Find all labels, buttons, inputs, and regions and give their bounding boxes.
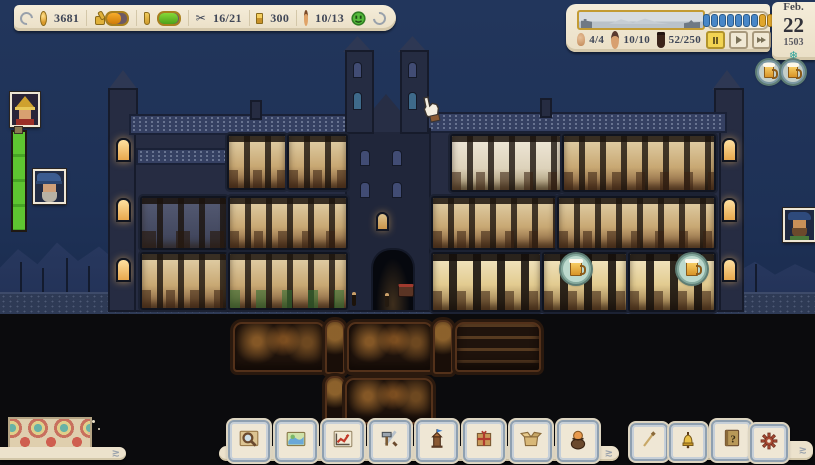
worker-icon: [611, 31, 619, 49]
left-wing-lower-roof: [136, 148, 230, 165]
time-beads: [702, 14, 774, 27]
play-button[interactable]: [729, 31, 748, 49]
blue-bead[interactable]: [743, 14, 750, 27]
supplies-bar: [157, 11, 181, 26]
room[interactable]: [287, 134, 348, 190]
sparkle: [98, 428, 100, 430]
brewery-room[interactable]: [347, 322, 433, 372]
date-day: 22: [783, 15, 804, 36]
blue-bead[interactable]: [735, 14, 742, 27]
blue-bead[interactable]: [751, 14, 758, 27]
magnifier-icon: [238, 428, 260, 455]
portrait-helmet-soldier[interactable]: [10, 92, 40, 127]
inspect-button[interactable]: [228, 420, 270, 462]
monks-button[interactable]: [557, 420, 599, 462]
beer-badge[interactable]: [677, 254, 707, 284]
chimney: [250, 100, 262, 120]
illuminated-ornament: [8, 417, 92, 451]
beer-mug-icon: [570, 262, 582, 276]
resource-bar: 3681 ✂ 16/21 300 10/13: [14, 5, 396, 31]
storage-room[interactable]: [455, 322, 541, 372]
monk-count: 10/13: [315, 11, 344, 26]
left-tower-roof: [108, 70, 138, 90]
help-book-icon: ?: [721, 427, 743, 454]
fast-forward-button[interactable]: [752, 31, 771, 49]
settings-button[interactable]: [750, 424, 788, 462]
trade-goods-button[interactable]: [463, 420, 505, 462]
open-box-icon: [520, 428, 542, 455]
food-bar: [105, 11, 129, 26]
beer-badge[interactable]: [561, 254, 591, 284]
beer-mug-icon: [764, 66, 774, 78]
tree: [88, 266, 90, 294]
basement-stairwell[interactable]: [325, 376, 345, 426]
tree: [20, 262, 22, 294]
supplies-pouch-icon: [144, 12, 150, 25]
beer-mug-icon: [788, 66, 798, 78]
construction-button[interactable]: [416, 420, 458, 462]
portrait-blue-beret-man[interactable]: [783, 208, 815, 242]
scroll-curl-icon: [17, 9, 35, 27]
storage-button[interactable]: [510, 420, 552, 462]
greenhouse-room[interactable]: [228, 252, 348, 310]
mountains-right: [735, 248, 815, 294]
beer-token[interactable]: [781, 60, 805, 84]
room[interactable]: [557, 196, 716, 250]
blue-bead[interactable]: [703, 14, 710, 27]
chart-icon: [332, 428, 354, 455]
room[interactable]: [140, 252, 228, 310]
tools-count: 16/21: [213, 11, 242, 26]
help-button[interactable]: ?: [711, 420, 752, 461]
left-tray: ≳: [0, 447, 126, 460]
right-tower-roof: [712, 70, 742, 90]
date-year: 1503: [784, 38, 804, 48]
progress-meter: [11, 130, 27, 232]
ingot-count: 300: [270, 11, 289, 26]
portrait-blue-hat-elder[interactable]: [33, 169, 66, 204]
winter-season-icon: ❄: [789, 50, 798, 61]
happiness-icon: [351, 11, 366, 26]
map-button[interactable]: [275, 420, 317, 462]
package-icon: [473, 428, 495, 455]
monk-figure[interactable]: [352, 292, 356, 306]
blue-bead[interactable]: [719, 14, 726, 27]
approval-icon: [94, 12, 99, 24]
tray-curl-icon: ≳: [112, 448, 120, 459]
tree: [66, 258, 68, 294]
beer-mug-icon: [686, 262, 698, 276]
chimney: [540, 98, 552, 118]
time-beads-track: [707, 11, 769, 30]
storage-sack-icon: [657, 32, 665, 48]
monk-icon: [304, 10, 309, 26]
right-wing-roof: [421, 112, 727, 133]
tree: [755, 264, 757, 294]
meter-peg: [14, 126, 23, 134]
resident-icon: [577, 33, 585, 46]
basement-stairwell[interactable]: [433, 320, 453, 374]
date-month: Feb.: [783, 2, 803, 13]
cart: [398, 284, 414, 297]
tavern-room[interactable]: [431, 252, 542, 312]
barrel-room[interactable]: [345, 378, 433, 424]
gold-ingot-icon: [256, 13, 263, 24]
entrance-arch[interactable]: [371, 248, 415, 310]
broom-button[interactable]: [630, 423, 668, 461]
left-wing-roof: [129, 114, 355, 135]
panorama-strip: [577, 10, 705, 30]
hand-cursor: [415, 94, 445, 130]
blue-bead[interactable]: [711, 14, 718, 27]
room[interactable]: [431, 196, 557, 250]
room[interactable]: [450, 134, 562, 192]
bell-button[interactable]: [669, 423, 707, 461]
sparkle: [88, 432, 90, 434]
tree: [42, 268, 44, 294]
cellar-room[interactable]: [233, 322, 325, 372]
room[interactable]: [228, 196, 348, 250]
tower-flag-icon: [426, 428, 448, 455]
beer-token[interactable]: [757, 60, 781, 84]
tray-curl-icon: ≳: [799, 445, 807, 456]
room[interactable]: [227, 134, 287, 190]
game-viewport: 3681 ✂ 16/21 300 10/13: [0, 0, 815, 465]
residents-count: 4/4: [589, 34, 604, 46]
sparkle: [92, 420, 95, 423]
room[interactable]: [562, 134, 716, 192]
workers-count: 10/10: [623, 34, 650, 46]
broom-icon: [639, 430, 659, 455]
storage-count: 52/250: [669, 34, 701, 46]
tray-curl-icon: ≳: [605, 448, 613, 459]
basement-stairwell[interactable]: [325, 320, 345, 374]
blue-bead[interactable]: [727, 14, 734, 27]
scroll-curl-icon: [370, 9, 388, 27]
statistics-button[interactable]: [322, 420, 364, 462]
map-icon: [285, 428, 307, 455]
bell-icon: [678, 430, 698, 455]
monk-figure[interactable]: [385, 293, 389, 307]
tools-icon: [379, 428, 401, 455]
gold-coin-icon: [40, 11, 47, 26]
pause-button[interactable]: [706, 31, 725, 49]
room[interactable]: [140, 196, 228, 250]
svg-text:?: ?: [730, 433, 736, 445]
gear-icon: [759, 431, 779, 456]
scissors-icon: ✂: [196, 11, 206, 25]
monk-bust-icon: [567, 428, 589, 455]
date-card: Feb. 22 1503 ❄: [772, 2, 815, 60]
yellow-bead[interactable]: [759, 14, 766, 27]
gold-amount: 3681: [54, 11, 79, 26]
crafting-button[interactable]: [369, 420, 411, 462]
